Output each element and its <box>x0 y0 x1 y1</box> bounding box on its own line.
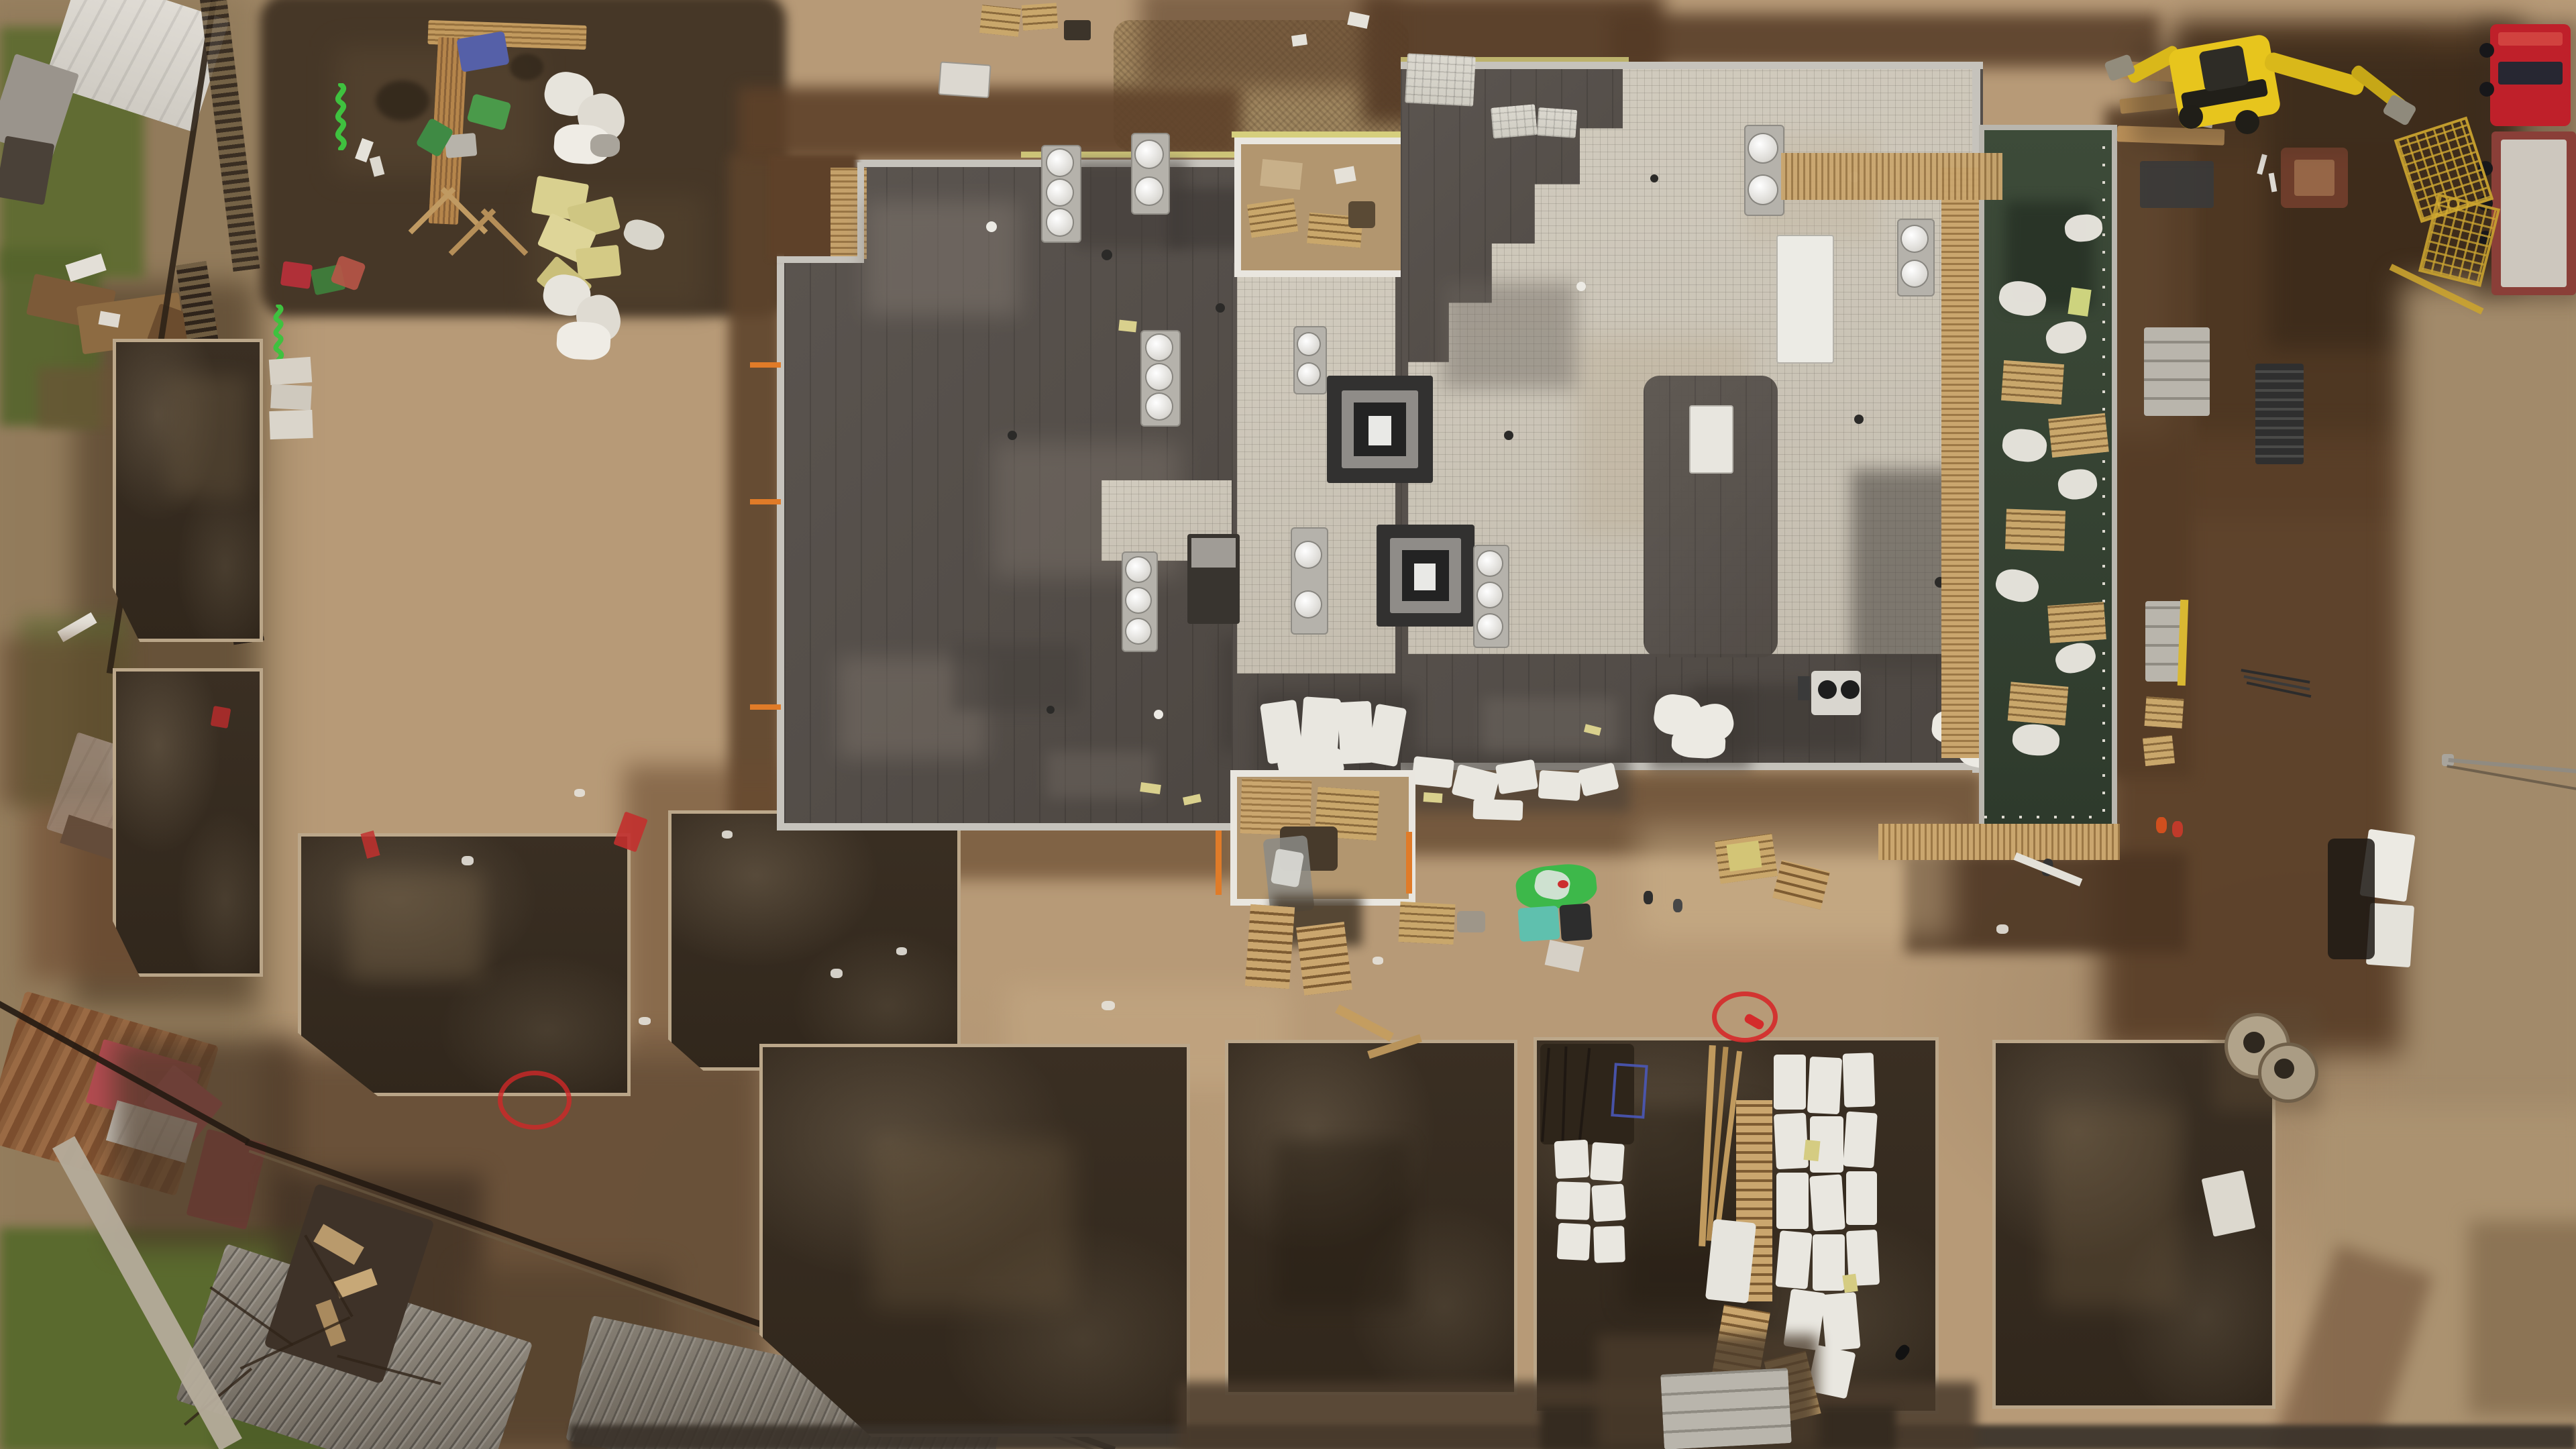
dark-grid-structure <box>2255 364 2304 464</box>
hvac-fan-1 <box>1818 680 1837 699</box>
white-bit-8 <box>574 789 585 797</box>
board-stack-2 <box>270 384 312 410</box>
white-bit-6 <box>639 1017 651 1025</box>
white-bit-4 <box>1373 957 1383 965</box>
hvac-fan-2 <box>1841 680 1860 699</box>
excavator-cab <box>2198 45 2249 93</box>
scrub-blob-1 <box>114 1040 295 1248</box>
dark-bin-top <box>1064 20 1091 40</box>
gray-blocks-right-1 <box>2144 327 2210 416</box>
foam-bit-4 <box>1424 792 1443 803</box>
white-debris-pile-b3 <box>556 321 612 361</box>
red-frame-inner <box>2294 160 2334 196</box>
white-stack-b6 <box>1843 1111 1878 1168</box>
pallet-top-edge-1 <box>979 5 1021 37</box>
mini-dumper-body <box>1517 906 1560 942</box>
skylight-white-2 <box>1689 405 1733 474</box>
orange-post-2 <box>1406 832 1412 894</box>
green-zone-pallet-3 <box>2005 508 2065 551</box>
atrium-skylight-2-glass <box>1414 563 1436 590</box>
truck-windshield <box>2498 62 2563 85</box>
truck-wheel-1 <box>2479 43 2494 58</box>
worker-hiviz-2 <box>2172 821 2183 837</box>
timber-deck-top <box>1781 153 2002 200</box>
atrium-skylight-1-glass <box>1368 416 1391 445</box>
white-stack-b10 <box>1775 1230 1812 1289</box>
dirt-mound <box>2469 1221 2576 1415</box>
gray-debris <box>590 134 620 157</box>
skylight-dome-icon <box>1146 394 1172 419</box>
white-stack-a3 <box>1556 1181 1591 1220</box>
worker-hiviz-1 <box>2156 817 2167 833</box>
hose-squiggle-glyph <box>270 305 287 361</box>
orange-post-1 <box>1216 830 1222 895</box>
skylight-strip-7 <box>1473 545 1509 648</box>
mini-dumper-engine <box>1559 903 1593 941</box>
gray-block-stack <box>1660 1368 1792 1449</box>
courtyard-pallet-1 <box>1247 198 1298 237</box>
white-stack-b9 <box>1846 1171 1877 1225</box>
paver-stack-pallet-1 <box>1405 53 1476 106</box>
roof-stain-light-4 <box>1046 751 1154 798</box>
truck-bed <box>2501 140 2567 287</box>
roof-vent-2 <box>1008 431 1017 440</box>
worker-2 <box>1673 899 1682 912</box>
roof-vent-7 <box>1046 706 1055 714</box>
skylight-dome-icon <box>1047 180 1073 206</box>
paver-stack-pallet-3 <box>1537 107 1578 138</box>
skylight-dome-icon <box>1146 335 1172 360</box>
concrete-ring-1-hole <box>2243 1032 2265 1053</box>
parapet-step-horizontal <box>777 256 863 263</box>
foam-in-stack-1 <box>1803 1140 1820 1161</box>
hose-squiggle-glyph <box>331 83 350 150</box>
roof-vent-4 <box>1504 431 1513 440</box>
foam-in-stack-2 <box>1842 1274 1858 1293</box>
foil-debris-white <box>1271 849 1304 888</box>
white-stack-b11 <box>1813 1234 1845 1291</box>
roof-vent-1 <box>1102 250 1112 260</box>
skylight-strip-6 <box>1291 527 1328 635</box>
large-skylight-white <box>1776 235 1834 364</box>
skylight-dome-icon <box>1136 141 1163 168</box>
plot-mottle-6 <box>1275 1140 1409 1308</box>
roof-vent-5 <box>1854 415 1864 424</box>
parapet-step-vertical <box>857 162 864 263</box>
skylight-dome-icon <box>1478 614 1502 639</box>
hvac-side-box <box>1798 676 1810 700</box>
skylight-strip-2 <box>1131 133 1170 215</box>
dark-pit-2 <box>510 54 543 80</box>
roof-stain-light-6 <box>1442 282 1576 389</box>
white-stack-b7 <box>1776 1173 1809 1229</box>
board-stack-3 <box>269 410 313 439</box>
red-paint-arc <box>498 1071 572 1130</box>
skylight-dome-icon <box>1749 134 1777 162</box>
skylight-dome-icon <box>1478 551 1502 576</box>
skylight-dome-icon <box>1126 557 1150 582</box>
below-entrance-pallet-1 <box>1245 904 1295 989</box>
white-bit-top-2 <box>1291 34 1307 47</box>
roof-white-dot-4 <box>1154 710 1163 719</box>
white-bit-2 <box>896 947 907 955</box>
skylight-dome-icon <box>1047 209 1073 235</box>
skylight-dome-icon <box>1126 619 1150 643</box>
orange-pipe-west-1 <box>750 362 781 368</box>
white-stack-a1 <box>1554 1140 1590 1179</box>
white-trailer-top <box>938 61 991 98</box>
white-stack-a2 <box>1590 1142 1625 1181</box>
parapet-right-wing-top <box>1401 62 1983 69</box>
white-stack-b4 <box>1774 1113 1809 1169</box>
playground-part-red <box>280 261 313 289</box>
green-zone-pallet-1 <box>2001 360 2064 405</box>
soil-plot-2 <box>113 668 263 977</box>
construction-site-aerial-photo <box>0 0 2576 1449</box>
skylight-strip-9 <box>1897 219 1935 297</box>
dark-pit-1 <box>376 80 429 121</box>
concrete-ring-2-hole <box>2274 1059 2294 1079</box>
excavator-wheel-2 <box>2235 110 2259 134</box>
roof-stain-light-1 <box>865 201 1020 315</box>
truck-cab-roof <box>2498 32 2563 46</box>
white-bit-3 <box>1102 1001 1115 1010</box>
truck-wheel-2 <box>2479 82 2494 97</box>
pallet-dirt-1 <box>2145 696 2184 729</box>
white-bit-1 <box>830 969 843 978</box>
skylight-dome-icon <box>1295 592 1321 617</box>
skylight-dome-icon <box>1047 150 1073 176</box>
roof-wet-patch-3 <box>953 644 1080 711</box>
board-stack-1 <box>269 357 312 385</box>
green-zone-foam <box>2068 287 2091 317</box>
dark-soil-top-center-2 <box>1140 0 1402 87</box>
below-entrance-pallet-2 <box>1296 922 1352 996</box>
skylight-dome-icon <box>1298 333 1320 355</box>
green-zone-pallet-5 <box>2008 682 2069 725</box>
green-zone-pallet-2 <box>2048 413 2109 458</box>
excavator-wheel-1 <box>2179 105 2203 129</box>
white-stack-b14 <box>1821 1292 1860 1351</box>
skylight-dome-icon <box>1478 583 1502 607</box>
white-bundle-lone <box>1705 1219 1756 1303</box>
scatter-plank-1 <box>1335 1004 1394 1042</box>
pallet-top-edge-2 <box>1022 3 1059 31</box>
white-bit-5 <box>722 830 733 839</box>
white-stack-a4 <box>1591 1183 1626 1222</box>
white-stack-b2 <box>1807 1057 1842 1114</box>
plot-mottle-5 <box>2046 1107 2180 1308</box>
skylight-strip-3 <box>1140 330 1181 427</box>
dark-pit-right <box>2328 839 2375 959</box>
insulation-bundle-8 <box>1495 759 1538 795</box>
insulation-bundle-6 <box>1411 756 1454 788</box>
brown-top-right-of-building <box>1610 13 2160 67</box>
insulation-bundle-11 <box>1472 799 1523 821</box>
timber-wall-column <box>1941 168 1979 758</box>
insulation-bundle-9 <box>1538 770 1582 801</box>
skylight-dome-icon <box>1902 226 1927 252</box>
worker-1 <box>1644 891 1653 904</box>
soil-plot-4 <box>668 810 961 1071</box>
white-stack-b1 <box>1774 1055 1806 1110</box>
roof-vent-3 <box>1216 303 1225 313</box>
pallet-dirt-2 <box>2143 735 2175 766</box>
scaffold-frame <box>2140 161 2214 208</box>
skylight-strip-4 <box>1122 551 1158 652</box>
roof-white-dot-1 <box>986 221 997 232</box>
green-hose-squiggle-2 <box>270 305 287 361</box>
ground-pallet-right <box>1398 902 1455 945</box>
insulation-crumple-3 <box>1671 727 1726 759</box>
roof-vent-8 <box>1650 174 1658 182</box>
skylight-strip-8 <box>1744 125 1784 216</box>
skylight-dome-icon <box>1298 364 1320 385</box>
yellow-load <box>1726 841 1762 871</box>
skylight-dome-icon <box>1902 261 1927 286</box>
white-bit-9 <box>1996 924 2008 934</box>
plot-mottle-1 <box>168 376 248 496</box>
foam-bit-1 <box>1118 320 1137 333</box>
timber-band-bottom <box>1878 824 2120 860</box>
skylight-strip-5 <box>1293 326 1327 394</box>
plot-mottle-2 <box>872 1140 1073 1308</box>
green-hose-squiggle-1 <box>331 83 350 150</box>
rooftop-unit-small-top <box>1191 538 1236 568</box>
green-zone-rivet-edge-right <box>2102 134 2105 812</box>
plot-mottle-4 <box>349 872 483 979</box>
dumper-sheet <box>1545 940 1585 972</box>
skylight-strip-1 <box>1041 145 1081 243</box>
white-stack-a6 <box>1593 1226 1625 1263</box>
skylight-dome-icon <box>1136 178 1163 205</box>
courtyard-lumber <box>1260 159 1303 190</box>
green-zone-pallet-4 <box>2047 602 2106 643</box>
skylight-dome-icon <box>1146 364 1172 390</box>
paver-stack-pallet-2 <box>1491 104 1538 139</box>
skylight-dome-icon <box>1295 542 1321 568</box>
foam-board-4 <box>576 245 621 280</box>
tarp-red-dot <box>1558 880 1568 888</box>
blue-frame <box>1611 1063 1648 1118</box>
white-stack-a5 <box>1557 1223 1591 1260</box>
skylight-dome-icon <box>1126 588 1150 612</box>
white-stack-b3 <box>1843 1053 1876 1108</box>
white-stack-b8 <box>1809 1174 1845 1231</box>
red-spray-mark <box>211 706 231 729</box>
courtyard-yellow-edge <box>1232 131 1401 138</box>
courtyard-dark-bits <box>1348 201 1375 228</box>
orange-pipe-west-2 <box>750 499 781 504</box>
orange-pipe-west-3 <box>750 704 781 710</box>
skylight-dome-icon <box>1749 176 1777 204</box>
gray-bits <box>1457 911 1485 932</box>
white-bit-7 <box>462 856 474 865</box>
roof-white-dot-2 <box>1576 282 1586 291</box>
green-zone-rivet-edge-bottom <box>1984 816 2102 818</box>
